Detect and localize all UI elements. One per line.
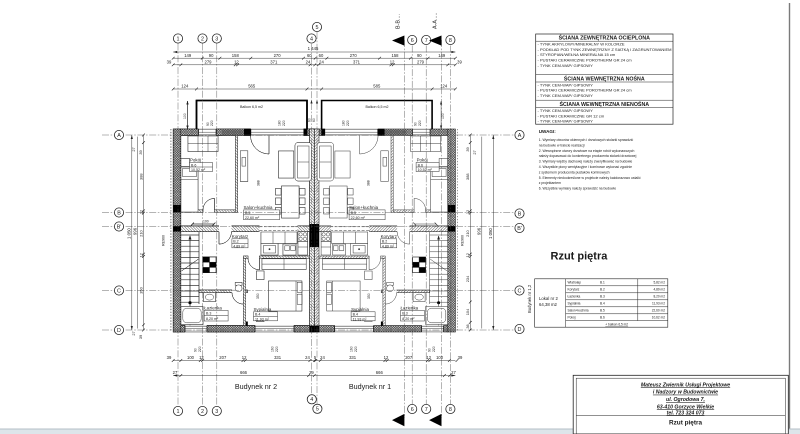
svg-text:1: 1: [177, 409, 180, 415]
svg-text:39: 39: [458, 355, 463, 360]
svg-text:4: 4: [310, 36, 313, 42]
svg-text:ŚCIANA ZEWNĘTRZNA OCIEPLONA: ŚCIANA ZEWNĘTRZNA OCIEPLONA: [559, 35, 651, 42]
svg-text:Budynek nr 1: Budynek nr 1: [349, 382, 391, 391]
svg-text:12: 12: [199, 355, 204, 360]
svg-text:207: 207: [219, 355, 227, 360]
svg-text:149: 149: [438, 53, 446, 58]
svg-text:210: 210: [138, 230, 143, 237]
svg-text:158: 158: [232, 53, 240, 58]
svg-text:27: 27: [131, 147, 136, 151]
svg-text:D: D: [117, 328, 121, 334]
svg-text:Salon+kuchnia: Salon+kuchnia: [349, 205, 378, 210]
svg-text:331: 331: [349, 355, 357, 360]
svg-text:11,93 m²: 11,93 m²: [255, 317, 270, 321]
svg-text:388: 388: [465, 173, 470, 180]
svg-text:100: 100: [183, 113, 187, 119]
svg-text:220: 220: [354, 346, 358, 352]
svg-text:- TYNK CEM-WAP/ GIPSOWY: - TYNK CEM-WAP/ GIPSOWY: [538, 93, 594, 98]
svg-text:C: C: [117, 288, 121, 294]
svg-text:100: 100: [436, 355, 444, 360]
svg-text:8: 8: [449, 407, 452, 413]
svg-text:B.1: B.1: [600, 281, 605, 285]
svg-text:36: 36: [465, 324, 470, 328]
svg-text:UWAGI:: UWAGI:: [539, 129, 557, 134]
svg-text:B.2: B.2: [382, 240, 387, 244]
svg-text:100: 100: [441, 113, 445, 119]
svg-text:Sypialnia: Sypialnia: [254, 307, 272, 312]
svg-text:5: 5: [316, 407, 319, 413]
svg-text:220: 220: [275, 346, 279, 352]
svg-text:z projektantem: z projektantem: [539, 181, 561, 185]
svg-text:10,52 m²: 10,52 m²: [191, 168, 206, 172]
svg-text:90: 90: [209, 53, 214, 58]
svg-text:- PODKŁAD POD TYNK ZEWNĘTRZNY: - PODKŁAD POD TYNK ZEWNĘTRZNY Z SIATKĄ I…: [538, 47, 673, 52]
svg-text:27: 27: [472, 150, 477, 154]
svg-text:A-A.....: A-A.....: [433, 13, 439, 29]
svg-text:29: 29: [309, 370, 314, 375]
svg-text:279: 279: [205, 60, 213, 65]
svg-text:B.5: B.5: [600, 309, 605, 313]
svg-text:D: D: [518, 327, 522, 333]
svg-text:Korytarz: Korytarz: [381, 234, 397, 239]
svg-text:- PUSTAKI CERAMICZNE POROTHERM: - PUSTAKI CERAMICZNE POROTHERM GR 24 cm: [538, 58, 633, 63]
svg-text:Balkon 6,5 m2: Balkon 6,5 m2: [366, 105, 389, 109]
svg-text:C: C: [518, 288, 522, 294]
svg-text:39: 39: [138, 150, 143, 154]
svg-text:B.4: B.4: [600, 302, 605, 306]
svg-text:ŚCIANA WEWNĘTRZNA NIENOŚNA: ŚCIANA WEWNĘTRZNA NIENOŚNA: [559, 101, 649, 108]
svg-text:331: 331: [274, 355, 282, 360]
svg-text:5. Elementy niedookreślone w p: 5. Elementy niedookreślone w projekcie n…: [539, 176, 641, 180]
svg-text:220: 220: [282, 120, 286, 126]
svg-text:4: 4: [310, 397, 313, 403]
svg-text:565: 565: [248, 84, 256, 89]
svg-text:1: 1: [177, 36, 180, 42]
svg-text:Rzut piętra: Rzut piętra: [669, 420, 702, 427]
svg-text:Sypialnia: Sypialnia: [568, 302, 581, 306]
svg-text:tel. 723 324 073: tel. 723 324 073: [667, 410, 705, 416]
svg-text:4,89 m²: 4,89 m²: [382, 244, 395, 248]
svg-text:666: 666: [376, 370, 384, 375]
svg-text:B-B....: B-B....: [396, 14, 402, 29]
svg-text:- PUSTAKI CERAMICZNE GR 12 cm: - PUSTAKI CERAMICZNE GR 12 cm: [538, 113, 605, 118]
svg-text:2: 2: [201, 409, 204, 415]
svg-text:39: 39: [138, 335, 143, 339]
svg-text:666: 666: [240, 370, 248, 375]
svg-text:12: 12: [426, 355, 431, 360]
svg-text:należy dopasować do konkretneg: należy dopasować do konkretnego producen…: [539, 154, 637, 158]
svg-text:39: 39: [457, 60, 462, 65]
svg-text:27: 27: [451, 370, 456, 375]
svg-text:Korytarz: Korytarz: [568, 288, 580, 292]
svg-text:Wiatrołap: Wiatrołap: [568, 281, 582, 285]
svg-text:1. Wymiary otworów okiennych i: 1. Wymiary otworów okiennych i drzwiowyc…: [539, 138, 634, 142]
svg-text:B': B': [517, 226, 522, 232]
svg-text:- STYROPIAN/WEŁNA MINERALNA 15: - STYROPIAN/WEŁNA MINERALNA 15 cm: [538, 52, 616, 57]
svg-text:22,60 m²: 22,60 m²: [245, 216, 260, 220]
svg-text:B': B': [117, 224, 122, 230]
svg-text:B.3: B.3: [600, 295, 605, 299]
svg-text:24: 24: [305, 355, 310, 360]
svg-text:100: 100: [203, 219, 209, 223]
svg-text:Salon+kuchnia: Salon+kuchnia: [568, 309, 589, 313]
svg-text:RE960: RE960: [162, 235, 166, 246]
svg-text:124: 124: [181, 84, 189, 89]
svg-text:279: 279: [417, 60, 425, 65]
svg-text:B.3: B.3: [206, 312, 211, 316]
svg-text:6: 6: [411, 38, 414, 44]
svg-text:7: 7: [425, 38, 428, 44]
svg-text:i Nadzory w Budownictwie: i Nadzory w Budownictwie: [653, 390, 718, 396]
svg-text:996: 996: [477, 227, 482, 235]
svg-text:12: 12: [390, 60, 395, 65]
svg-text:Salon+kuchnia: Salon+kuchnia: [244, 205, 273, 210]
svg-text:z systemem producenta pustaków: z systemem producenta pustaków kominowyc…: [539, 170, 610, 174]
svg-text:8,20 m²: 8,20 m²: [206, 317, 219, 321]
svg-text:39: 39: [465, 147, 470, 151]
svg-text:- TYNK CEM-WAP/ GIPSOWY: - TYNK CEM-WAP/ GIPSOWY: [538, 82, 594, 87]
svg-text:B.2: B.2: [600, 288, 605, 292]
svg-text:B.6: B.6: [600, 316, 605, 320]
svg-text:A: A: [518, 133, 522, 139]
svg-text:Pokój: Pokój: [190, 157, 201, 162]
svg-text:Lokal nr 2: Lokal nr 2: [539, 296, 558, 301]
svg-text:350: 350: [256, 293, 260, 299]
svg-text:Mateusz Zwiernik Usługi Projek: Mateusz Zwiernik Usługi Projektowe: [641, 382, 730, 388]
svg-text:4. Wszystkie piony wentylacyjn: 4. Wszystkie piony wentylacyjne i komino…: [539, 165, 632, 169]
svg-text:Łazienka: Łazienka: [204, 305, 222, 310]
svg-text:996: 996: [132, 227, 137, 235]
svg-text:B.3: B.3: [402, 312, 407, 316]
svg-text:350: 350: [138, 286, 143, 293]
svg-text:60: 60: [308, 118, 312, 122]
svg-text:1 050: 1 050: [488, 228, 493, 239]
svg-text:12: 12: [138, 253, 143, 257]
svg-text:B.6: B.6: [191, 163, 196, 167]
svg-text:ŚCIANA WEWNĘTRZNA NOŚNA: ŚCIANA WEWNĘTRZNA NOŚNA: [564, 75, 645, 82]
svg-text:220: 220: [418, 120, 422, 126]
svg-text:8: 8: [449, 38, 452, 44]
svg-text:ul. Ogrodowa 7,: ul. Ogrodowa 7,: [666, 397, 705, 403]
svg-text:Korytarz: Korytarz: [232, 234, 248, 239]
svg-text:207: 207: [405, 355, 413, 360]
svg-text:24: 24: [319, 60, 324, 65]
svg-text:270: 270: [350, 53, 358, 58]
svg-text:220: 220: [198, 346, 202, 352]
svg-text:A: A: [117, 133, 121, 139]
svg-text:Łazienka: Łazienka: [401, 305, 419, 310]
svg-text:4,89 m²: 4,89 m²: [233, 244, 246, 248]
svg-text:RE960: RE960: [461, 235, 465, 246]
svg-text:210: 210: [465, 230, 470, 237]
svg-text:5: 5: [316, 25, 319, 31]
svg-text:12: 12: [242, 355, 247, 360]
svg-text:B.5: B.5: [245, 211, 250, 215]
svg-text:3: 3: [215, 36, 218, 42]
svg-text:3: 3: [215, 409, 218, 415]
svg-text:B.4: B.4: [255, 313, 260, 317]
svg-text:585: 585: [373, 84, 381, 89]
svg-text:24: 24: [320, 355, 325, 360]
svg-text:2: 2: [201, 36, 204, 42]
svg-text:60: 60: [307, 53, 312, 58]
svg-text:371: 371: [353, 60, 361, 65]
svg-text:24: 24: [306, 60, 311, 65]
svg-text:220: 220: [432, 346, 436, 352]
svg-text:6. Wszystkie wymiary należy sp: 6. Wszystkie wymiary należy sprawdzić na…: [539, 187, 617, 191]
svg-text:5,82 m2: 5,82 m2: [653, 281, 665, 285]
svg-text:- PUSTAKI CERAMICZNE POROTHERM: - PUSTAKI CERAMICZNE POROTHERM GR 24 cm: [538, 88, 633, 93]
svg-text:12: 12: [138, 210, 143, 214]
svg-text:124: 124: [440, 84, 448, 89]
svg-text:12: 12: [384, 355, 389, 360]
svg-text:Łazienka: Łazienka: [568, 295, 581, 299]
svg-text:7: 7: [425, 407, 428, 413]
svg-text:388: 388: [138, 173, 143, 180]
svg-text:- TYNK CEM-WAP/ GIPSOWY: - TYNK CEM-WAP/ GIPSOWY: [538, 63, 594, 68]
svg-text:12: 12: [234, 60, 239, 65]
svg-text:B.4: B.4: [353, 313, 358, 317]
svg-text:2. Wewnętrzne otwory drzwiowe: 2. Wewnętrzne otwory drzwiowe na etapie …: [539, 149, 635, 153]
svg-text:22,60 m²: 22,60 m²: [351, 216, 366, 220]
svg-text:100: 100: [187, 355, 195, 360]
svg-text:Sypialnia: Sypialnia: [351, 307, 369, 312]
svg-text:220: 220: [346, 120, 350, 126]
svg-text:B.2: B.2: [233, 240, 238, 244]
svg-text:B: B: [117, 210, 121, 216]
svg-text:12: 12: [465, 210, 470, 214]
svg-text:1 050: 1 050: [127, 228, 132, 239]
svg-text:27: 27: [131, 331, 136, 335]
svg-text:220: 220: [210, 120, 214, 126]
svg-text:11,93 m2: 11,93 m2: [652, 302, 665, 306]
svg-text:+ balkon 6,5 m2: + balkon 6,5 m2: [605, 322, 628, 326]
svg-text:- TYNK CEM-WAP/ GIPSOWY: - TYNK CEM-WAP/ GIPSOWY: [538, 108, 594, 113]
svg-text:3. Wymiary więźby dachowej nal: 3. Wymiary więźby dachowej należy zweryf…: [539, 160, 633, 164]
svg-text:Budynek nr 1,2: Budynek nr 1,2: [527, 284, 532, 313]
svg-text:B.6: B.6: [418, 163, 423, 167]
svg-text:B: B: [518, 211, 522, 217]
svg-text:- TYNK AKRYLOWY/MINERALNY W KO: - TYNK AKRYLOWY/MINERALNY W KOLORZE: [538, 42, 625, 47]
svg-text:Balkon 6,5 m2: Balkon 6,5 m2: [240, 105, 263, 109]
svg-text:10,52 m²: 10,52 m²: [418, 168, 433, 172]
svg-text:Rzut piętra: Rzut piętra: [551, 251, 609, 263]
svg-text:11,93 m²: 11,93 m²: [353, 317, 368, 321]
svg-text:6: 6: [411, 407, 414, 413]
svg-text:149: 149: [184, 53, 192, 58]
svg-text:10,62 m2: 10,62 m2: [652, 316, 666, 320]
svg-text:4,89 m2: 4,89 m2: [653, 288, 665, 292]
svg-text:350: 350: [367, 293, 371, 299]
svg-text:- TYNK CEM-WAP/ GIPSOWY: - TYNK CEM-WAP/ GIPSOWY: [538, 119, 594, 124]
svg-text:39: 39: [167, 355, 172, 360]
svg-text:22,60 m2: 22,60 m2: [652, 309, 666, 313]
svg-text:B.5: B.5: [351, 211, 356, 215]
svg-text:60: 60: [319, 53, 324, 58]
svg-text:158: 158: [392, 53, 400, 58]
svg-text:104: 104: [465, 308, 470, 315]
svg-text:388: 388: [257, 180, 261, 186]
svg-text:64,38 m2: 64,38 m2: [539, 302, 558, 307]
svg-text:1 445: 1 445: [308, 46, 319, 51]
svg-text:371: 371: [270, 60, 278, 65]
svg-text:270: 270: [274, 53, 282, 58]
svg-text:8,20 m2: 8,20 m2: [653, 295, 665, 299]
svg-text:na budowie w trakcie realizacj: na budowie w trakcie realizacji: [539, 143, 585, 147]
svg-text:90: 90: [417, 53, 422, 58]
svg-text:Budynek nr 2: Budynek nr 2: [235, 382, 277, 391]
svg-text:12: 12: [465, 253, 470, 257]
svg-text:60: 60: [312, 118, 316, 122]
svg-text:39: 39: [167, 60, 172, 65]
svg-text:234: 234: [465, 275, 470, 282]
svg-text:388: 388: [367, 180, 371, 186]
svg-text:Pokój: Pokój: [417, 157, 428, 162]
svg-text:Pokój: Pokój: [568, 316, 576, 320]
